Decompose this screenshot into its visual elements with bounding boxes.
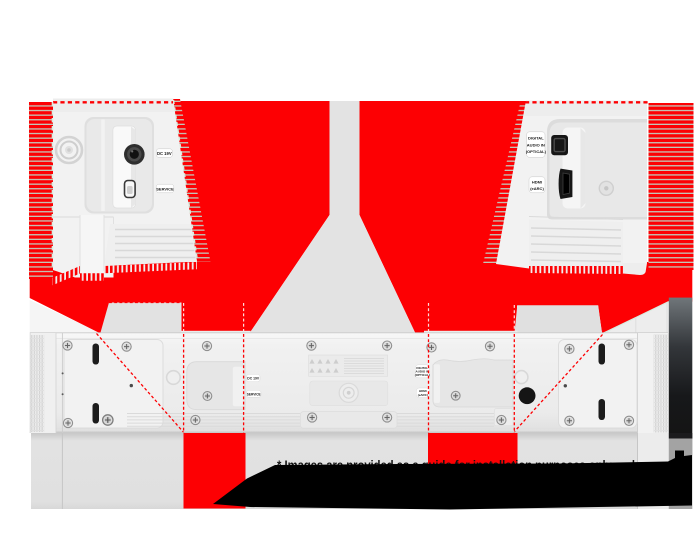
svg-text:SERVICE: SERVICE bbox=[247, 393, 261, 397]
svg-text:HDMI: HDMI bbox=[532, 179, 542, 184]
svg-text:(OPTICAL): (OPTICAL) bbox=[415, 373, 430, 377]
svg-text:SERVICE: SERVICE bbox=[156, 187, 174, 192]
svg-text:AUDIO IN: AUDIO IN bbox=[527, 142, 545, 147]
svg-text:(eARC): (eARC) bbox=[418, 393, 428, 397]
svg-text:DIGITAL: DIGITAL bbox=[528, 136, 544, 141]
svg-text:DC 19V: DC 19V bbox=[157, 151, 172, 156]
svg-text:(eARC): (eARC) bbox=[530, 186, 544, 191]
svg-text:DC 19V: DC 19V bbox=[247, 377, 260, 381]
svg-text:(OPTICAL): (OPTICAL) bbox=[526, 149, 547, 154]
